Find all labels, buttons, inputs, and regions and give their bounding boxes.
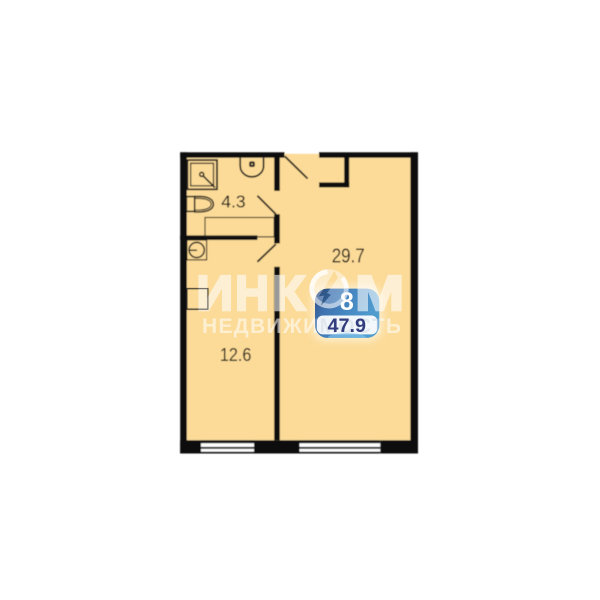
svg-text:8: 8 [340,288,354,316]
svg-text:И: И [196,266,233,321]
svg-text:К: К [272,266,306,321]
svg-text:4.3: 4.3 [221,192,245,212]
svg-text:47.9: 47.9 [328,316,367,337]
svg-text:Н: Н [235,266,269,321]
svg-text:12.6: 12.6 [220,344,252,365]
svg-text:М: М [355,266,404,321]
svg-text:29.7: 29.7 [332,245,365,267]
